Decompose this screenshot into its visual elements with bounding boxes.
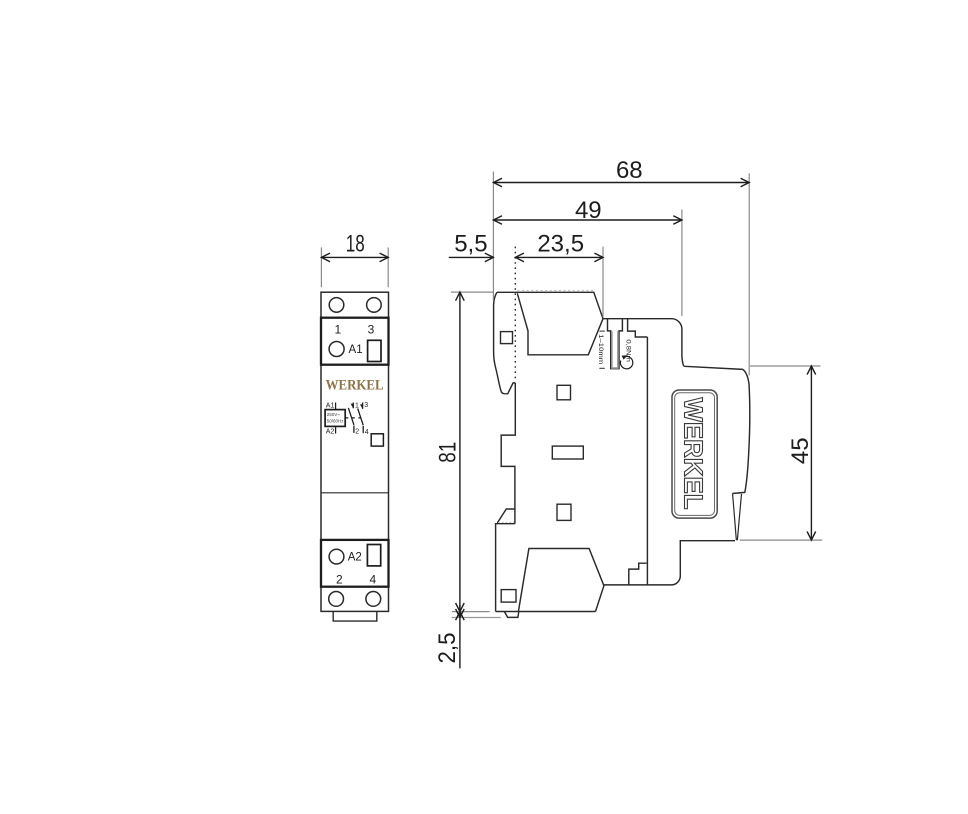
svg-text:23,5: 23,5: [537, 231, 584, 258]
svg-text:4: 4: [365, 429, 369, 436]
svg-text:4: 4: [370, 573, 377, 587]
svg-text:5,5: 5,5: [454, 231, 487, 258]
svg-text:68: 68: [616, 157, 643, 184]
svg-text:1: 1: [355, 403, 359, 410]
svg-text:WERKEL: WERKEL: [678, 398, 708, 510]
svg-text:2,5: 2,5: [434, 633, 461, 664]
svg-text:0,8Nm: 0,8Nm: [624, 339, 631, 362]
svg-text:A1: A1: [349, 344, 363, 356]
svg-text:81: 81: [434, 442, 461, 463]
svg-text:2: 2: [336, 573, 343, 587]
svg-text:A2: A2: [348, 552, 362, 564]
svg-text:2: 2: [355, 429, 359, 436]
svg-text:A1: A1: [326, 402, 335, 409]
svg-text:250V~: 250V~: [327, 412, 341, 417]
svg-text:3: 3: [368, 322, 375, 336]
svg-text:49: 49: [575, 197, 602, 224]
svg-text:WERKEL: WERKEL: [326, 377, 384, 393]
svg-text:18: 18: [346, 231, 365, 258]
svg-text:45: 45: [787, 437, 814, 464]
svg-text:1: 1: [334, 322, 341, 336]
svg-text:50/60Hz: 50/60Hz: [327, 418, 345, 423]
svg-text:A2: A2: [326, 428, 335, 435]
svg-text:1–10mm: 1–10mm: [597, 334, 604, 365]
svg-text:3: 3: [364, 402, 368, 409]
